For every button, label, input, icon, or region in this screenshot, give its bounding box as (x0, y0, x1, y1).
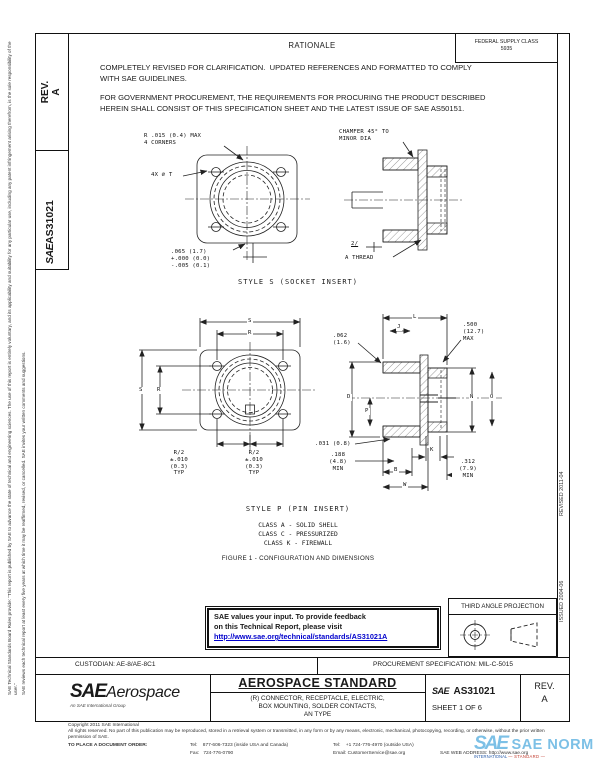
third-angle-projection-icon (449, 615, 556, 655)
projection-box: THIRD ANGLE PROJECTION (448, 598, 557, 657)
rev-cell-value: A (520, 694, 569, 705)
dim-label-chamfer: CHAMFER 45° TO MINOR DIA (338, 129, 390, 143)
heading-divider (210, 692, 425, 693)
dim-label-holes: 4X ∅ T (150, 172, 173, 179)
figure-number-caption: FIGURE 1 - CONFIGURATION AND DIMENSIONS (148, 555, 448, 562)
rev-cell-label: REV. (520, 681, 569, 691)
dim-n: N (469, 394, 475, 401)
watermark-international: INTERNATIONAL (474, 754, 507, 759)
dim-r2-left: R/2 ±.010 (0.3) TYP (158, 450, 200, 477)
dim-key-width: .031 (0.8) (314, 441, 352, 448)
dim-w: W (402, 482, 408, 489)
footer-fax: Fax: 724-776-0790 (190, 751, 233, 756)
footer-tel-inside: Tel: 877-606-7323 (inside USA and Canada… (190, 743, 288, 748)
figure2-caption: STYLE P (PIN INSERT) (148, 505, 448, 513)
procurement-spec: PROCUREMENT SPECIFICATION: MIL-C-5015 (317, 661, 569, 668)
dim-s-top: S (247, 318, 253, 325)
custodian: CUSTODIAN: AE-8/AE-8C1 (75, 661, 155, 668)
document-page: SAE Technical Standards Board Rules prov… (0, 0, 600, 776)
dim-label-flange-thickness: .065 (1.7) +.000 (0.0) -.005 (0.1) (170, 249, 211, 269)
dim-min-thread: .188 (4.8) MIN (322, 452, 354, 472)
dim-r-left: R (156, 387, 162, 394)
issued-date: ISSUED 2004-06 (559, 581, 565, 622)
sheet-number: SHEET 1 OF 6 (432, 703, 495, 712)
feedback-link[interactable]: http://www.sae.org/technical/standards/A… (214, 632, 387, 641)
watermark-standard: ― STANDARD ― (508, 754, 545, 759)
dim-l: L (412, 314, 418, 321)
dim-r-top: R (247, 330, 253, 337)
sae-norm-watermark: SAE SAE NORM INTERNATIONAL ― STANDARD ― (474, 733, 594, 759)
dim-s-left: S (138, 387, 144, 394)
dim-max-depth: .500 (12.7) MAX (462, 322, 485, 342)
rev-cell: REV. A (520, 681, 569, 705)
technical-drawing (0, 0, 600, 776)
feedback-box: SAE values your input. To provide feedba… (205, 606, 441, 650)
titleblock-top-line (35, 657, 569, 658)
dim-r2-right: R/2 ±.010 (0.3) TYP (233, 450, 275, 477)
watermark-text: SAE NORM (512, 737, 594, 753)
doc-type-heading: AEROSPACE STANDARD (210, 676, 425, 690)
watermark-logo: SAE (474, 733, 507, 754)
feedback-line-2: on this Technical Report, please visit (214, 622, 432, 632)
sae-aerospace-logo: SAEAerospace An SAE International Group (70, 681, 180, 708)
class-notes: CLASS A - SOLID SHELL CLASS C - PRESSURI… (148, 521, 448, 548)
titleblock-mid-line (35, 674, 569, 675)
dim-o: O (489, 394, 495, 401)
logo-aerospace-text: Aerospace (106, 684, 180, 701)
dim-j: J (396, 324, 402, 331)
document-title: (R) CONNECTOR, RECEPTACLE, ELECTRIC, BOX… (210, 695, 425, 719)
dim-label-thread: A THREAD (344, 255, 375, 262)
footer-email: Email: CustomerService@sae.org (333, 751, 405, 756)
projection-title: THIRD ANGLE PROJECTION (449, 599, 556, 615)
logo-sae-text: SAE (70, 681, 106, 702)
feedback-line-1: SAE values your input. To provide feedba… (214, 612, 432, 622)
number-prefix: SAE (432, 686, 449, 696)
dim-wall: .062 (1.6) (332, 333, 352, 347)
dim-b: B (393, 467, 399, 474)
dim-p: P (364, 408, 370, 415)
document-number: AS31021 (453, 686, 495, 697)
doc-number-cell: SAE AS31021 SHEET 1 OF 6 (432, 681, 495, 712)
titleblock-v2 (425, 674, 426, 721)
dim-d: D (346, 394, 352, 401)
footer-order-label: TO PLACE A DOCUMENT ORDER: (68, 743, 147, 748)
revised-date: REVISED 2011-04 (559, 471, 565, 516)
note-flag: 2/ (350, 241, 359, 248)
figure1-caption: STYLE S (SOCKET INSERT) (148, 278, 448, 286)
footer-copyright: Copyright 2011 SAE International (68, 723, 139, 728)
dim-k: K (429, 447, 435, 454)
logo-tagline: An SAE International Group (70, 703, 180, 708)
footer-tel-outside: Tel: +1 724-776-4970 (outside USA) (333, 743, 414, 748)
dim-min-engage: .312 (7.9) MIN (452, 459, 484, 479)
dim-label-corner-radius: R .015 (0.4) MAX 4 CORNERS (143, 133, 202, 147)
